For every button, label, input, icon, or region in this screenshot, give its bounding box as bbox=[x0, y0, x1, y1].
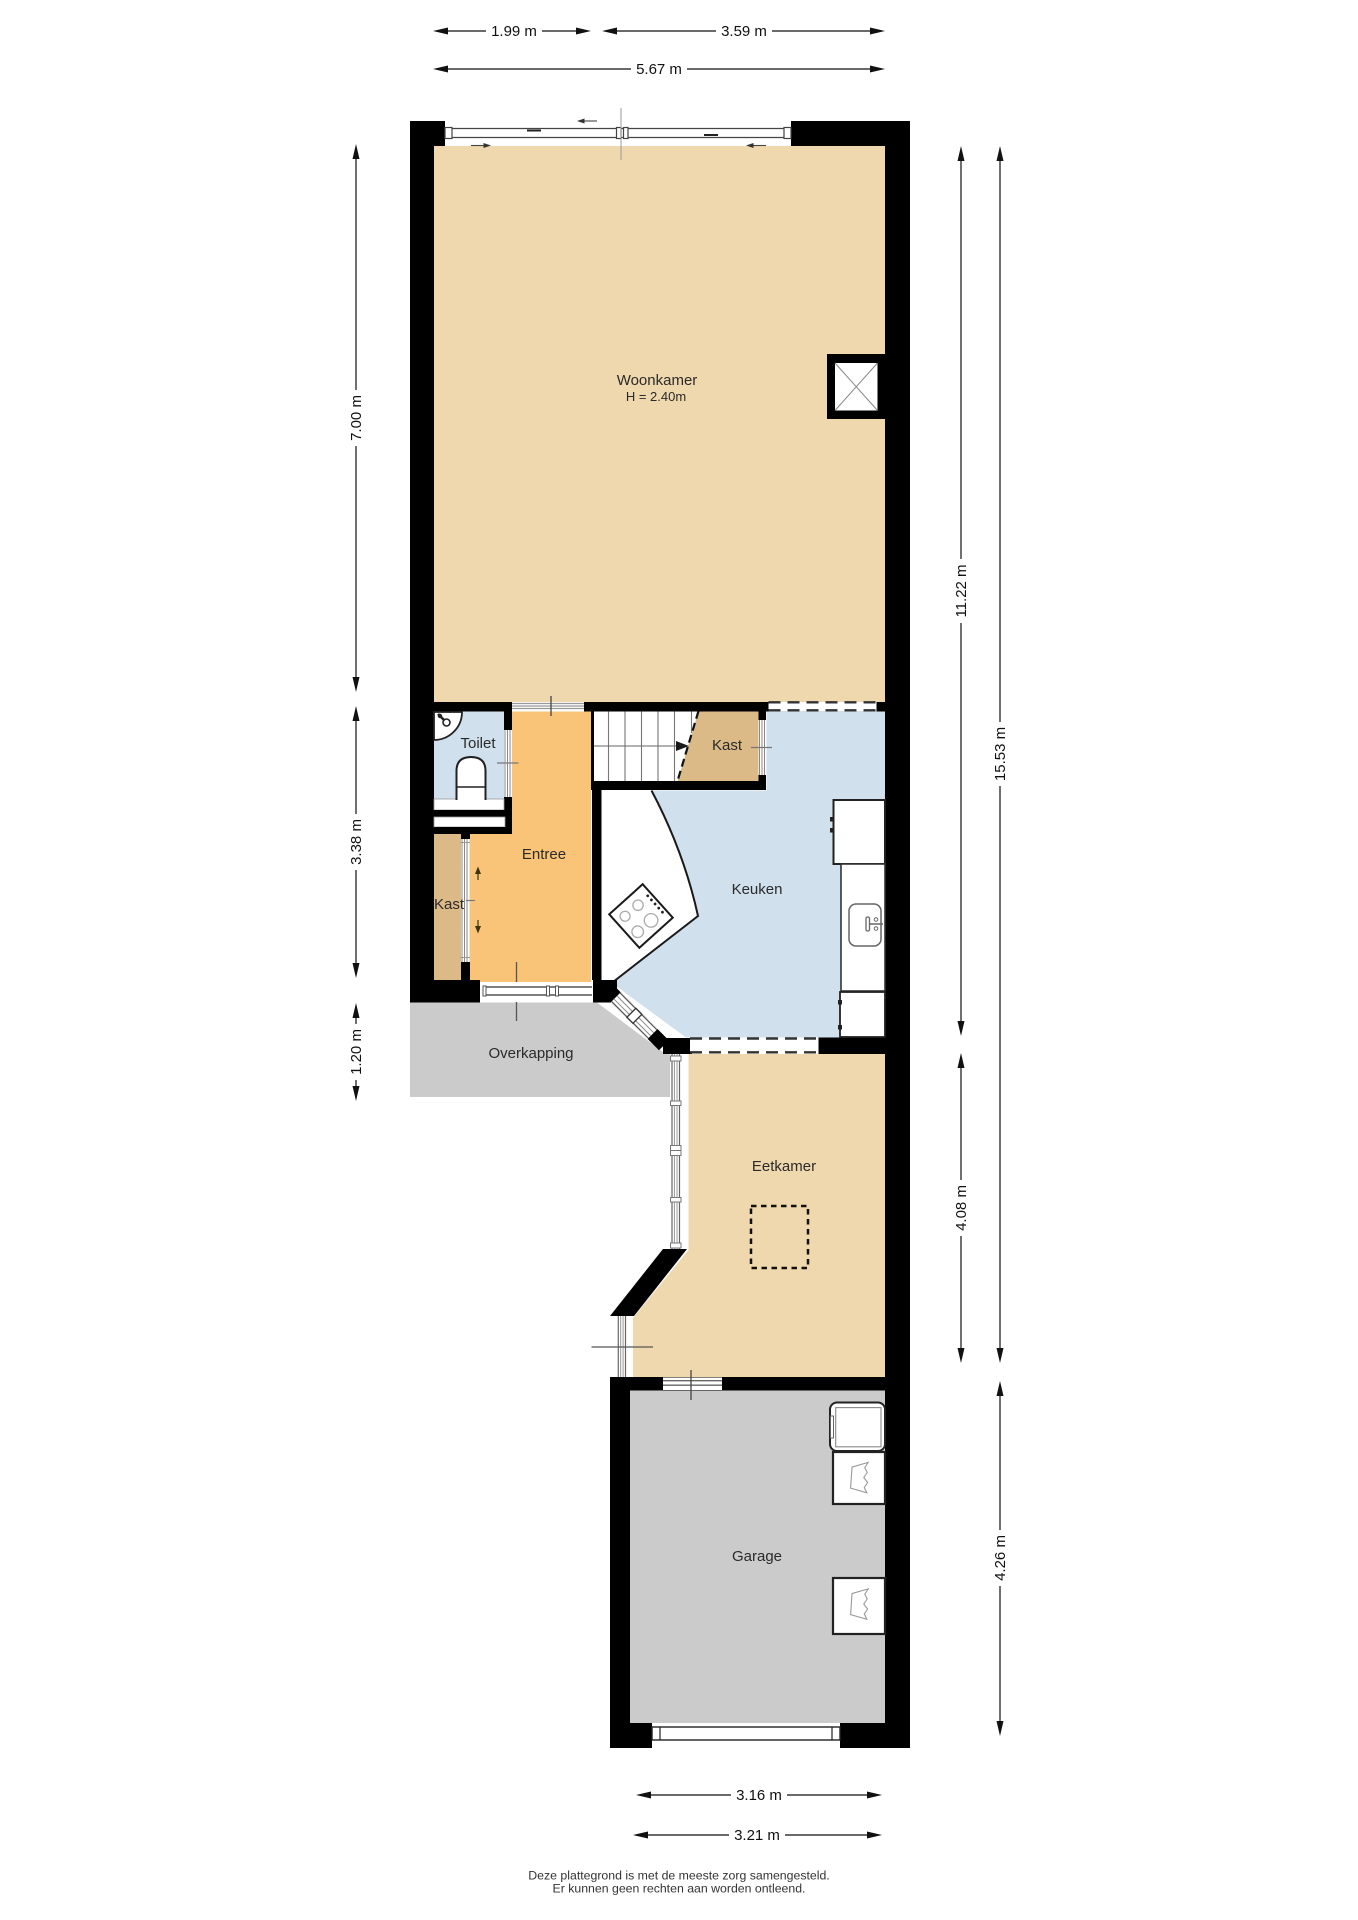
svg-text:Entree: Entree bbox=[522, 846, 566, 863]
svg-text:15.53 m: 15.53 m bbox=[992, 727, 1009, 781]
svg-text:Eetkamer: Eetkamer bbox=[752, 1158, 816, 1175]
svg-text:Kast: Kast bbox=[712, 737, 743, 754]
svg-text:Keuken: Keuken bbox=[732, 881, 783, 898]
svg-text:Er kunnen geen rechten aan wor: Er kunnen geen rechten aan worden ontlee… bbox=[553, 1882, 806, 1896]
svg-text:7.00 m: 7.00 m bbox=[348, 395, 365, 441]
svg-text:5.67 m: 5.67 m bbox=[636, 61, 682, 78]
svg-text:Overkapping: Overkapping bbox=[488, 1045, 573, 1062]
svg-text:3.59 m: 3.59 m bbox=[721, 23, 767, 40]
svg-text:4.26 m: 4.26 m bbox=[992, 1535, 1009, 1581]
svg-text:Deze plattegrond is met de mee: Deze plattegrond is met de meeste zorg s… bbox=[528, 1869, 829, 1883]
svg-text:11.22 m: 11.22 m bbox=[953, 564, 970, 617]
svg-text:Kast: Kast bbox=[434, 896, 465, 913]
svg-text:Garage: Garage bbox=[732, 1548, 782, 1565]
svg-text:3.38 m: 3.38 m bbox=[348, 819, 365, 865]
svg-text:3.16 m: 3.16 m bbox=[736, 1787, 782, 1804]
svg-text:Toilet: Toilet bbox=[460, 735, 496, 752]
svg-text:H = 2.40m: H = 2.40m bbox=[626, 389, 686, 404]
svg-text:1.20 m: 1.20 m bbox=[348, 1029, 365, 1075]
svg-text:Woonkamer: Woonkamer bbox=[617, 372, 698, 389]
svg-text:3.21 m: 3.21 m bbox=[734, 1827, 780, 1844]
svg-text:4.08 m: 4.08 m bbox=[953, 1185, 970, 1231]
svg-text:1.99 m: 1.99 m bbox=[491, 23, 537, 40]
